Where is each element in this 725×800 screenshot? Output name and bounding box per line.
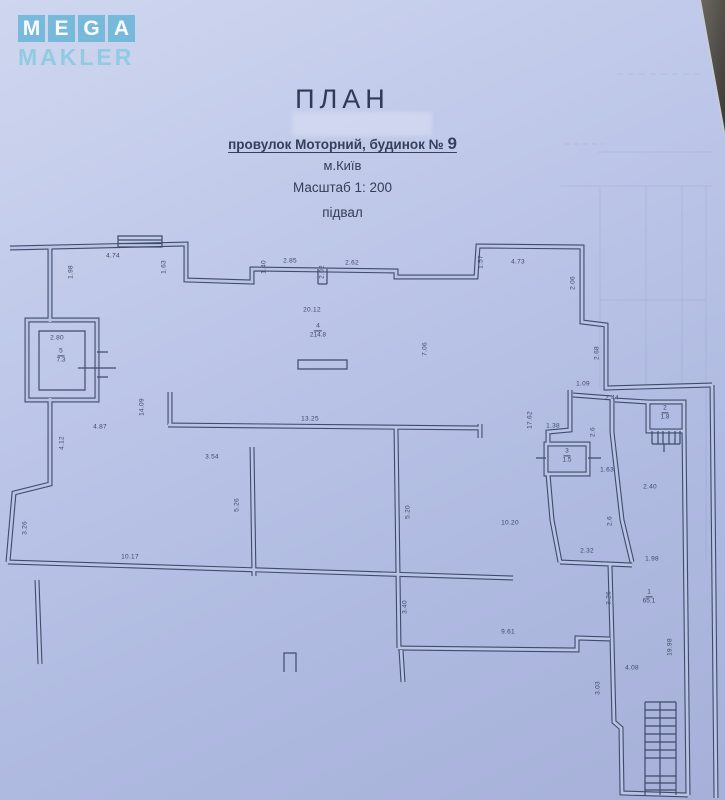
column-symbol <box>298 360 347 369</box>
room2-steps-hatch <box>652 431 680 452</box>
photo-corner <box>700 0 725 133</box>
floor-plan-drawing <box>0 0 725 800</box>
staircase-rails <box>645 702 676 795</box>
plan-walls <box>8 244 716 798</box>
photographed-floor-plan-sheet: M E G A MAKLER ПЛАН провулок Моторний, б… <box>0 0 725 800</box>
room5-inner-wall <box>39 331 85 390</box>
plan-walls <box>8 244 716 798</box>
small-opening-symbol <box>284 653 296 672</box>
